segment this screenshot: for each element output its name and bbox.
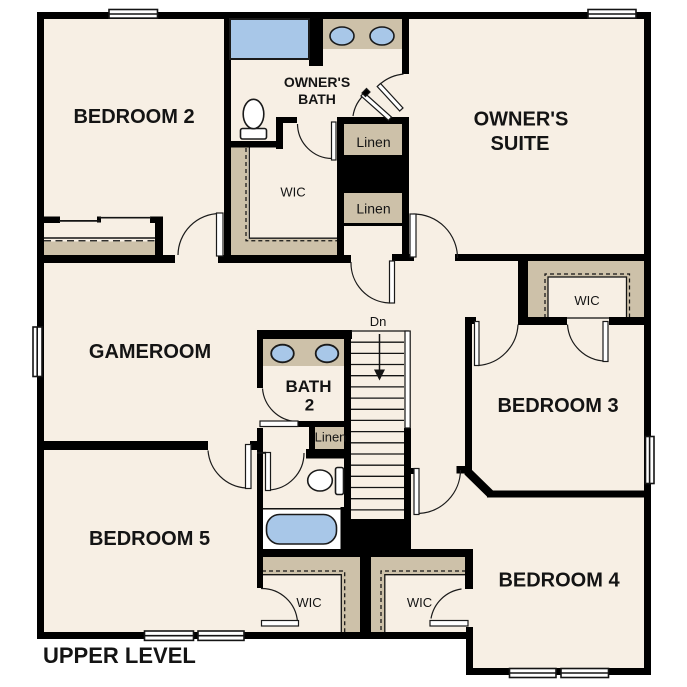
svg-text:BEDROOM 3: BEDROOM 3 [497,395,618,417]
svg-text:BEDROOM 5: BEDROOM 5 [89,528,210,550]
svg-text:Linen: Linen [315,430,347,445]
svg-text:WIC: WIC [296,595,321,610]
svg-text:Linen: Linen [356,134,390,150]
svg-text:WIC: WIC [407,595,432,610]
svg-text:BEDROOM 2: BEDROOM 2 [73,106,194,128]
svg-text:2: 2 [305,396,314,415]
svg-text:BATH: BATH [286,377,332,396]
svg-text:BATH: BATH [298,91,336,107]
svg-text:SUITE: SUITE [491,133,550,155]
svg-text:WIC: WIC [574,293,599,308]
svg-text:Dn: Dn [370,314,387,329]
svg-text:GAMEROOM: GAMEROOM [89,341,211,363]
svg-text:OWNER'S: OWNER'S [474,109,569,131]
svg-text:WIC: WIC [280,185,305,200]
svg-text:UPPER LEVEL: UPPER LEVEL [43,643,196,668]
svg-text:Linen: Linen [356,201,390,217]
svg-text:BEDROOM 4: BEDROOM 4 [498,570,620,592]
svg-text:OWNER'S: OWNER'S [284,74,350,90]
